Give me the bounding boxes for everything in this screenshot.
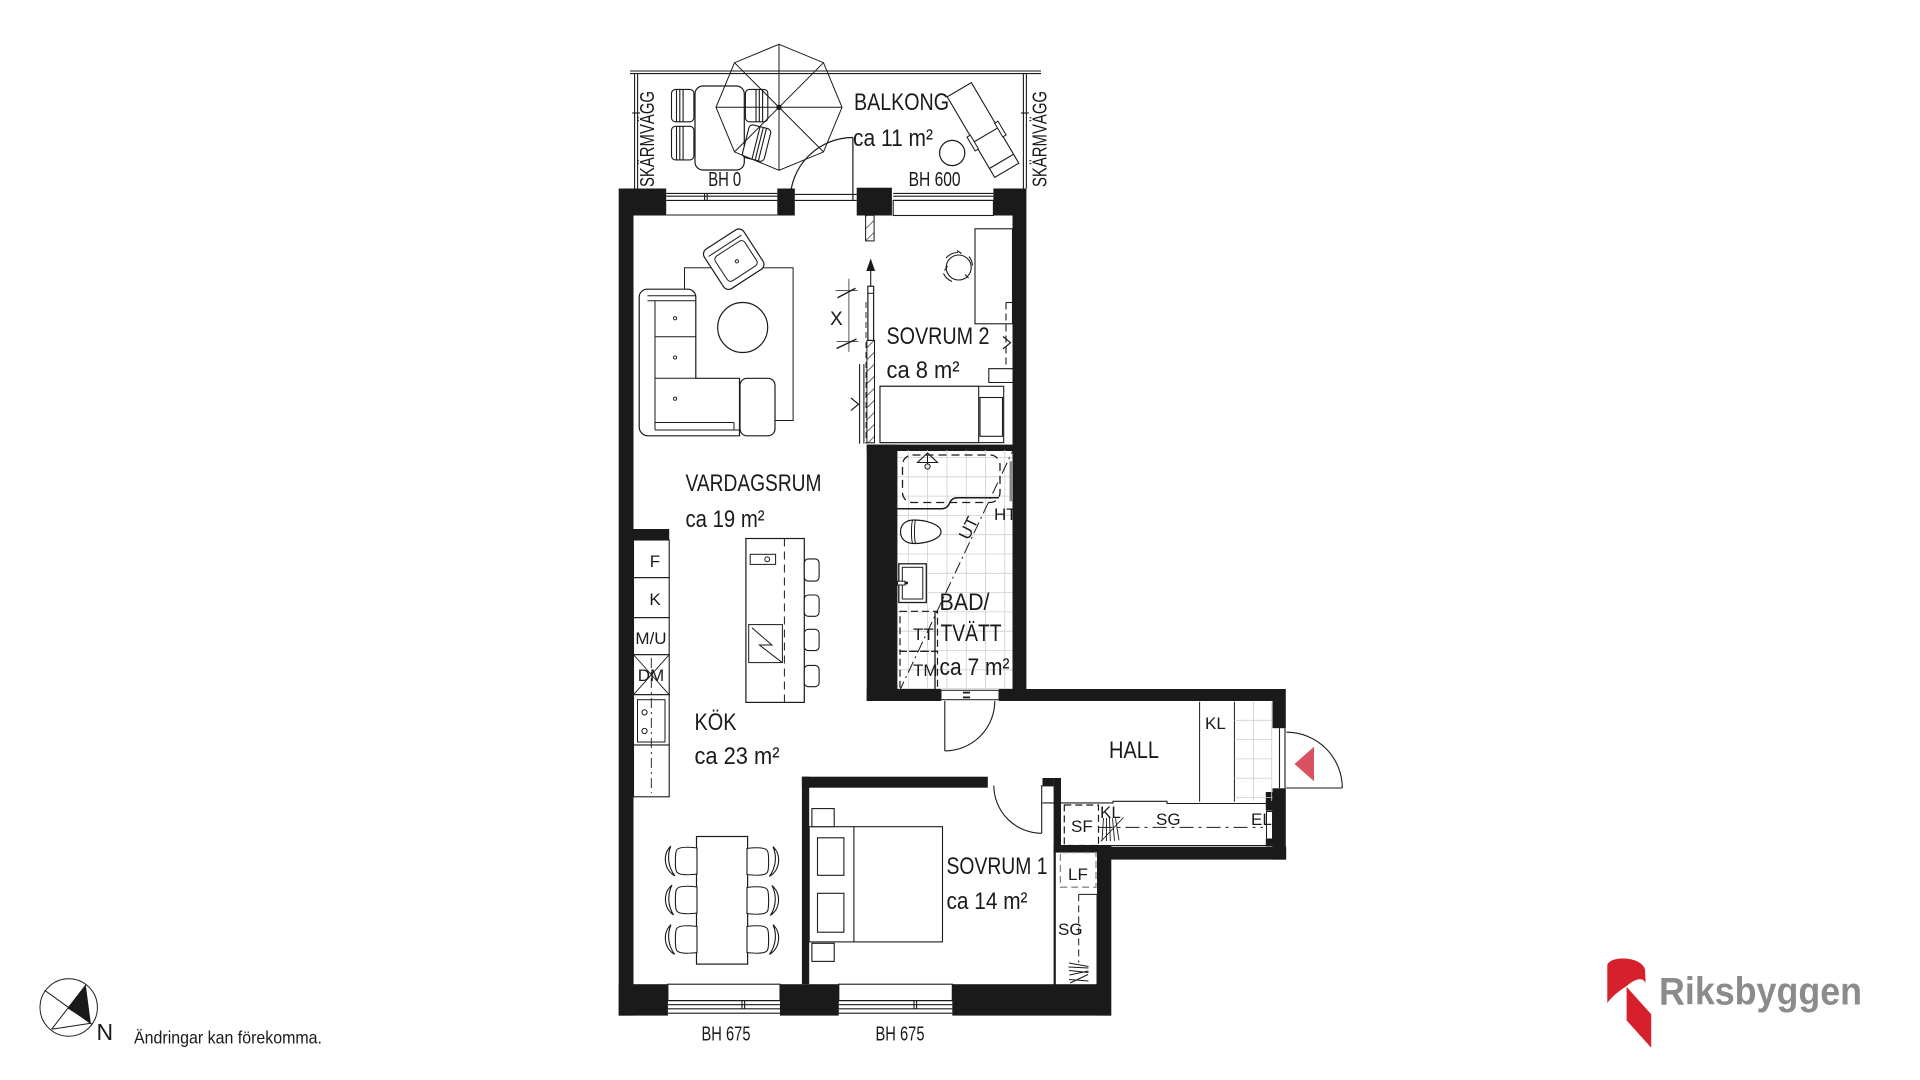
svg-text:TM: TM (913, 661, 938, 680)
svg-text:ca 11 m²: ca 11 m² (853, 125, 933, 152)
svg-text:LF: LF (1068, 865, 1088, 884)
svg-text:BH 0: BH 0 (708, 169, 741, 191)
svg-text:X: X (830, 309, 843, 330)
svg-text:Ändringar kan förekomma.: Ändringar kan förekomma. (134, 1028, 322, 1048)
svg-text:BALKONG: BALKONG (854, 89, 949, 116)
svg-text:HT: HT (994, 505, 1017, 524)
svg-text:F: F (650, 552, 660, 571)
svg-text:N: N (97, 1019, 114, 1045)
svg-text:BH 675: BH 675 (876, 1024, 925, 1046)
svg-text:ca 7 m²: ca 7 m² (940, 654, 1010, 681)
svg-text:SG: SG (1156, 810, 1181, 829)
svg-text:SKÄRMVÄGG: SKÄRMVÄGG (637, 91, 659, 187)
svg-text:KÖK: KÖK (695, 709, 737, 736)
svg-text:BH 675: BH 675 (702, 1024, 751, 1046)
svg-text:BAD/: BAD/ (940, 589, 990, 616)
svg-text:VARDAGSRUM: VARDAGSRUM (686, 470, 822, 497)
svg-text:SKÄRMVÄGG: SKÄRMVÄGG (1030, 91, 1052, 187)
svg-text:ca 19 m²: ca 19 m² (686, 506, 765, 533)
svg-text:KL: KL (1100, 803, 1121, 822)
svg-text:SOVRUM 1: SOVRUM 1 (947, 853, 1048, 880)
svg-text:TT: TT (913, 625, 934, 644)
svg-text:ca 23 m²: ca 23 m² (695, 743, 780, 770)
svg-text:SF: SF (1071, 817, 1093, 836)
svg-text:BH 600: BH 600 (909, 169, 961, 191)
svg-text:KL: KL (1205, 714, 1226, 733)
svg-text:SG: SG (1058, 920, 1083, 939)
svg-text:TVÄTT: TVÄTT (941, 620, 1002, 647)
svg-text:K: K (649, 590, 661, 609)
svg-text:ca 8 m²: ca 8 m² (887, 357, 960, 384)
svg-text:DM: DM (638, 666, 664, 685)
svg-text:SOVRUM 2: SOVRUM 2 (887, 323, 990, 350)
svg-text:M/U: M/U (635, 629, 666, 648)
svg-text:HALL: HALL (1109, 737, 1159, 764)
svg-text:ca 14 m²: ca 14 m² (947, 888, 1028, 915)
svg-text:EL: EL (1251, 810, 1272, 829)
svg-text:Riksbyggen: Riksbyggen (1659, 971, 1862, 1014)
